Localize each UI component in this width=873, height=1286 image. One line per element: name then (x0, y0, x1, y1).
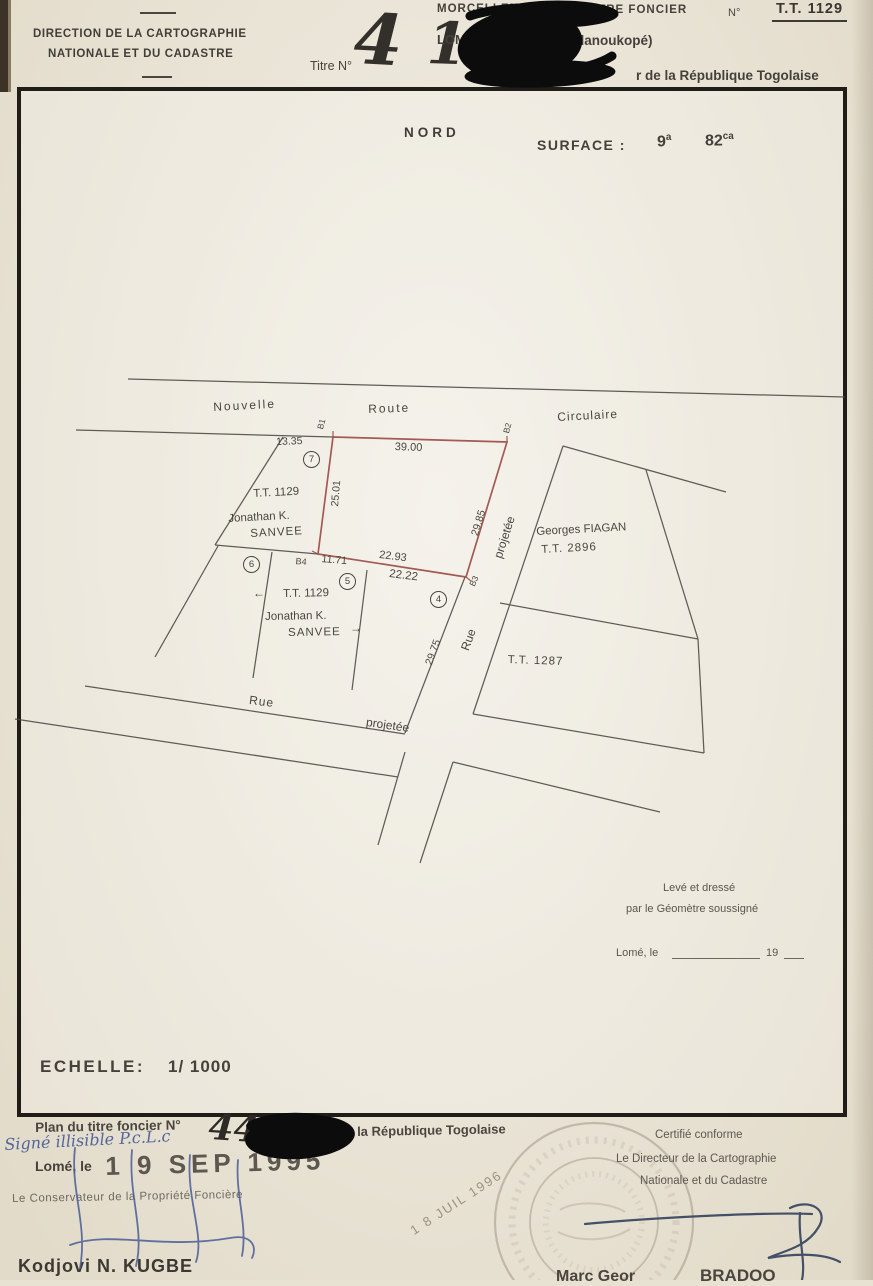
signature-conservateur (70, 1148, 254, 1268)
redaction-blob-header (455, 1, 618, 90)
ink-and-redactions (0, 0, 873, 1280)
signature-directeur (585, 1204, 840, 1280)
scan-edge-right-shadow (851, 0, 873, 1280)
redaction-blob-footer (244, 1111, 357, 1163)
scanned-land-title-plan: DIRECTION DE LA CARTOGRAPHIE NATIONALE E… (0, 0, 873, 1280)
scan-edge-dark-strip (0, 0, 8, 92)
scan-edge-shadow (8, 0, 11, 92)
